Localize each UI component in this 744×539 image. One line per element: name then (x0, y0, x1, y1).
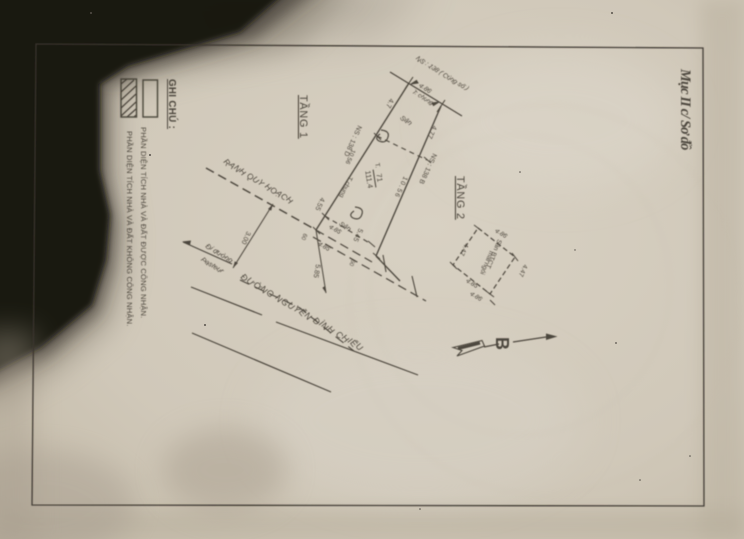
svg-text:TẦNG 1: TẦNG 1 (297, 95, 310, 139)
svg-text:71: 71 (374, 173, 384, 183)
svg-text:Mục II c/ Sơ đồ: Mục II c/ Sơ đồ (677, 68, 693, 150)
svg-text:B: B (492, 337, 512, 350)
svg-text:PHẦN DIỆN TÍCH NHÀ VÀ ĐẤT KHÔN: PHẦN DIỆN TÍCH NHÀ VÀ ĐẤT KHÔNG CÔNG NHẬ… (125, 131, 135, 326)
svg-text:TẦNG 2: TẦNG 2 (454, 176, 467, 220)
svg-text:PHẦN DIỆN TÍCH NHÀ VÀ ĐẤT ĐƯỢC: PHẦN DIỆN TÍCH NHÀ VÀ ĐẤT ĐƯỢC CÔNG NHẬN… (139, 127, 149, 318)
svg-text:GHI CHÚ :: GHI CHÚ : (166, 79, 178, 129)
